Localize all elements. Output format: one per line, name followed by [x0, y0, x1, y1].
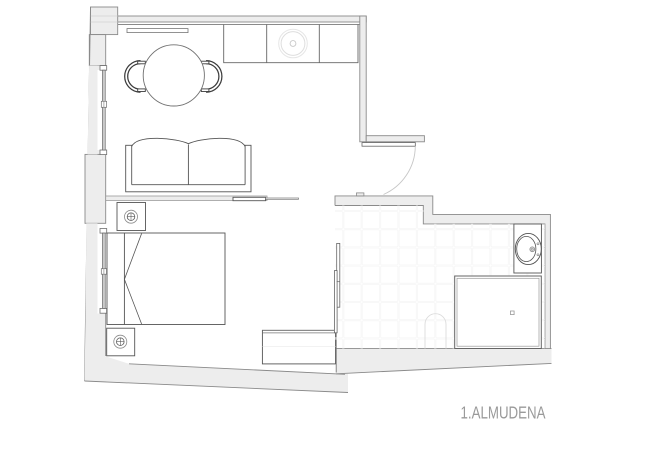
svg-text:1.ALMUDENA: 1.ALMUDENA	[461, 403, 546, 423]
